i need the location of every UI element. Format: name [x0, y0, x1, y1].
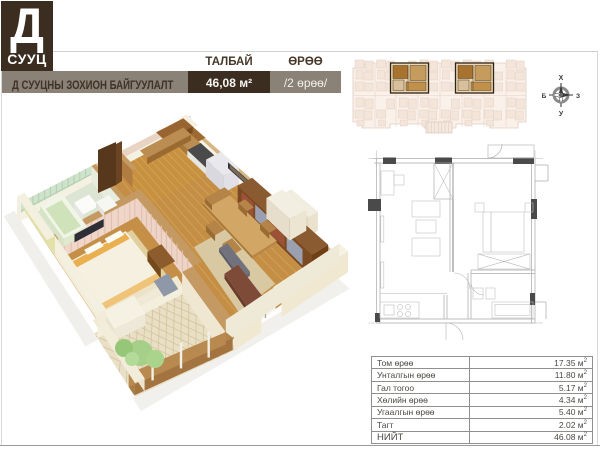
svg-text:Б: Б: [542, 93, 547, 100]
svg-text:У: У: [559, 111, 564, 118]
svg-text:З: З: [576, 93, 580, 100]
svg-text:Х: Х: [559, 75, 564, 82]
